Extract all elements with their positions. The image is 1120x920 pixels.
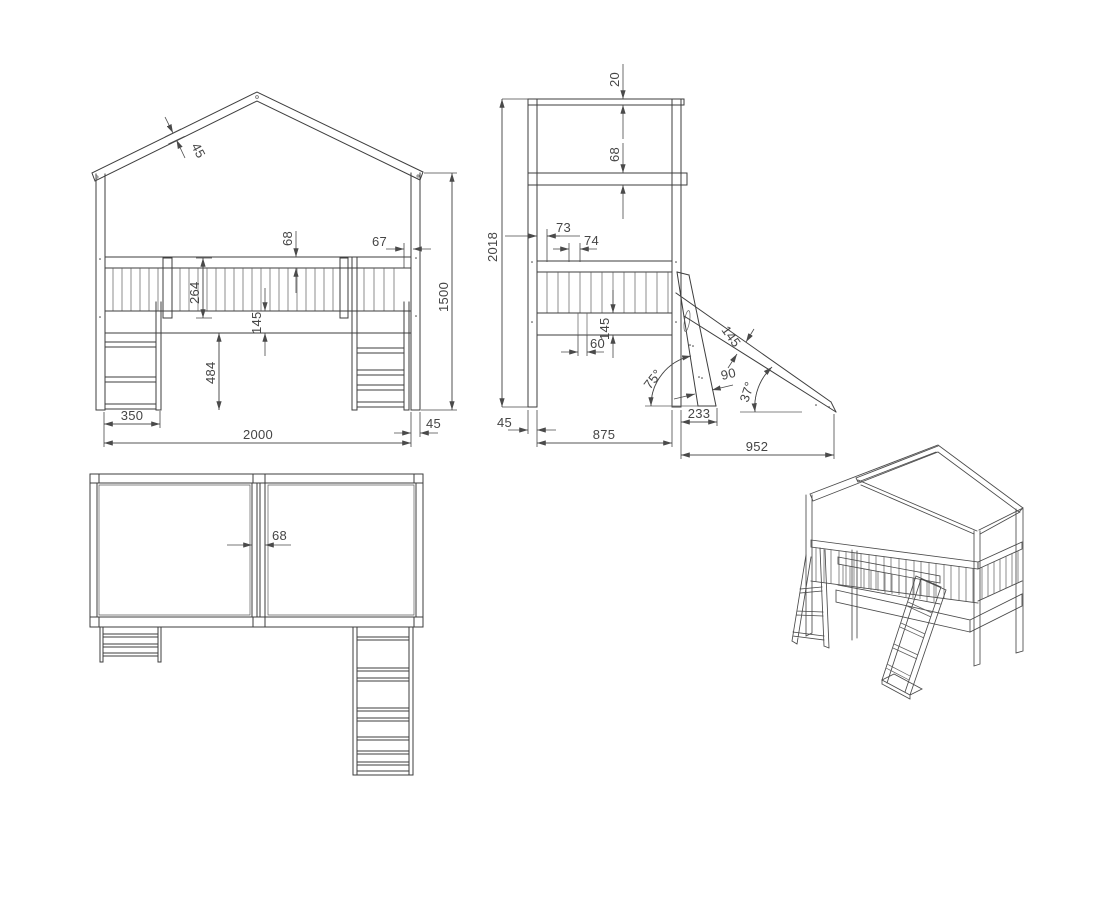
front-view: 45 68 67 264 145 484 <box>92 92 457 447</box>
dim-slide-board-width: 145 <box>719 323 744 350</box>
dim-front-roof-thickness: 45 <box>188 140 208 160</box>
top-structure <box>90 474 423 775</box>
dim-side-slat-pitch: 74 <box>584 233 599 248</box>
cad-drawing-page: 45 68 67 264 145 484 <box>0 0 1120 920</box>
ladder-handle-slot <box>683 310 691 332</box>
dim-front-clearance: 484 <box>203 361 218 384</box>
top-ladder <box>100 627 161 662</box>
dim-front-ladder-width: 350 <box>121 408 144 423</box>
dim-side-post-thickness: 45 <box>497 415 512 430</box>
front-ladder <box>105 302 161 410</box>
dim-front-top-rail: 68 <box>280 231 295 246</box>
dim-top-center-beam: 68 <box>272 528 287 543</box>
top-slide <box>353 627 413 775</box>
dim-bed-depth: 875 <box>593 427 616 442</box>
dim-side-first-slat: 73 <box>556 220 571 235</box>
dim-side-overall-height: 2018 <box>485 232 500 262</box>
dim-front-bed-length: 2000 <box>243 427 273 442</box>
top-center-beam <box>252 483 265 617</box>
dim-front-rail-offset: 67 <box>372 234 387 249</box>
side-view: 2018 20 68 73 74 145 <box>485 64 836 459</box>
drawing-canvas: 45 68 67 264 145 484 <box>0 0 1120 920</box>
side-ladder <box>677 272 716 406</box>
dim-slide-foot-offset: 952 <box>746 439 769 454</box>
iso-roof <box>810 445 1023 512</box>
dim-slide-angle: 37° <box>737 380 758 404</box>
dim-side-ridge-thickness: 20 <box>607 72 622 87</box>
dim-ladder-angle: 75° <box>641 366 665 391</box>
dim-side-base-slat: 60 <box>590 336 605 351</box>
dim-front-railing-height: 264 <box>187 281 202 304</box>
iso-view <box>792 445 1023 699</box>
top-view: 68 <box>90 474 423 775</box>
side-railing-slats <box>547 272 668 313</box>
dim-front-post-thickness: 45 <box>426 416 441 431</box>
side-structure <box>528 99 836 412</box>
front-roof <box>92 92 423 181</box>
dim-side-eave-rail: 68 <box>607 147 622 162</box>
dim-ladder-foot-offset: 233 <box>688 406 711 421</box>
dim-front-frame-height: 145 <box>249 311 264 334</box>
front-structure <box>92 92 423 410</box>
front-slide <box>352 258 409 410</box>
dim-front-eave-height: 1500 <box>436 282 451 312</box>
top-dimensions: 68 <box>227 528 291 545</box>
iso-ladder <box>792 548 829 648</box>
